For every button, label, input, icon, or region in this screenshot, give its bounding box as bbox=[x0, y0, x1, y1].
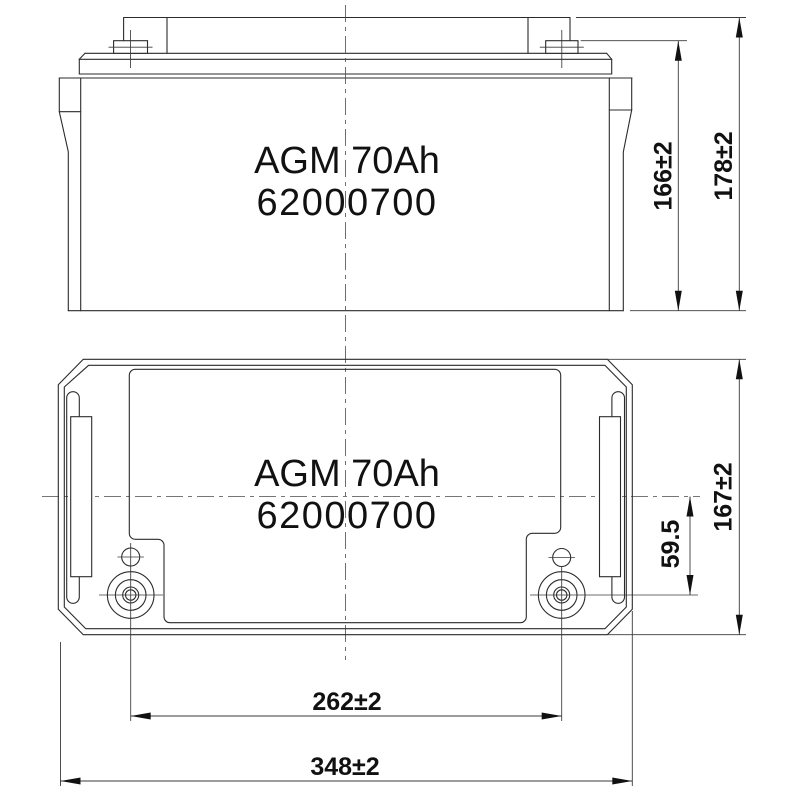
arrow-up-icon bbox=[687, 497, 694, 517]
top-view: AGM 70Ah 62000700 167±2 59.5 262±2 bbox=[58, 359, 746, 786]
arrow-right-icon bbox=[612, 778, 632, 785]
dim-overall-width: 348±2 bbox=[310, 753, 379, 781]
arrow-right-icon bbox=[542, 713, 562, 720]
dim-terminal-pitch: 262±2 bbox=[312, 688, 381, 716]
arrow-up-icon bbox=[736, 18, 743, 38]
arrow-up-icon bbox=[675, 41, 682, 61]
side-view: AGM 70Ah 62000700 166±2 178±2 bbox=[59, 18, 746, 311]
side-view-terminal-right bbox=[540, 30, 584, 68]
handle-grip bbox=[71, 417, 92, 577]
top-view-handle-left bbox=[67, 392, 92, 604]
arrow-left-icon bbox=[61, 778, 81, 785]
side-view-label-model: AGM 70Ah bbox=[254, 140, 440, 182]
arrow-down-icon bbox=[675, 291, 682, 311]
negative-terminal-mark-icon bbox=[549, 549, 575, 567]
arrow-left-icon bbox=[131, 713, 151, 720]
arrow-down-icon bbox=[687, 575, 694, 595]
side-view-dimensions: 166±2 178±2 bbox=[576, 18, 746, 311]
arrow-down-icon bbox=[736, 291, 743, 311]
top-view-label-part-number: 62000700 bbox=[256, 495, 437, 537]
side-view-terminal-cover bbox=[124, 18, 570, 54]
arrow-down-icon bbox=[736, 615, 743, 635]
top-view-terminal-left bbox=[99, 543, 163, 721]
dim-case-height: 166±2 bbox=[650, 141, 678, 210]
dim-depth: 167±2 bbox=[710, 462, 738, 531]
side-view-label-part-number: 62000700 bbox=[256, 182, 437, 224]
battery-technical-drawing: AGM 70Ah 62000700 166±2 178±2 bbox=[0, 0, 800, 800]
top-view-label-model: AGM 70Ah bbox=[254, 453, 440, 495]
dim-terminal-offset: 59.5 bbox=[657, 520, 685, 569]
top-view-handle-right bbox=[600, 392, 625, 604]
dim-total-height: 178±2 bbox=[710, 131, 738, 200]
top-view-dimensions: 167±2 59.5 262±2 348±2 bbox=[61, 359, 747, 786]
handle-grip bbox=[600, 417, 621, 577]
side-view-terminal-left bbox=[109, 30, 153, 68]
arrow-up-icon bbox=[736, 359, 743, 379]
drawing-svg: AGM 70Ah 62000700 166±2 178±2 bbox=[0, 0, 800, 800]
